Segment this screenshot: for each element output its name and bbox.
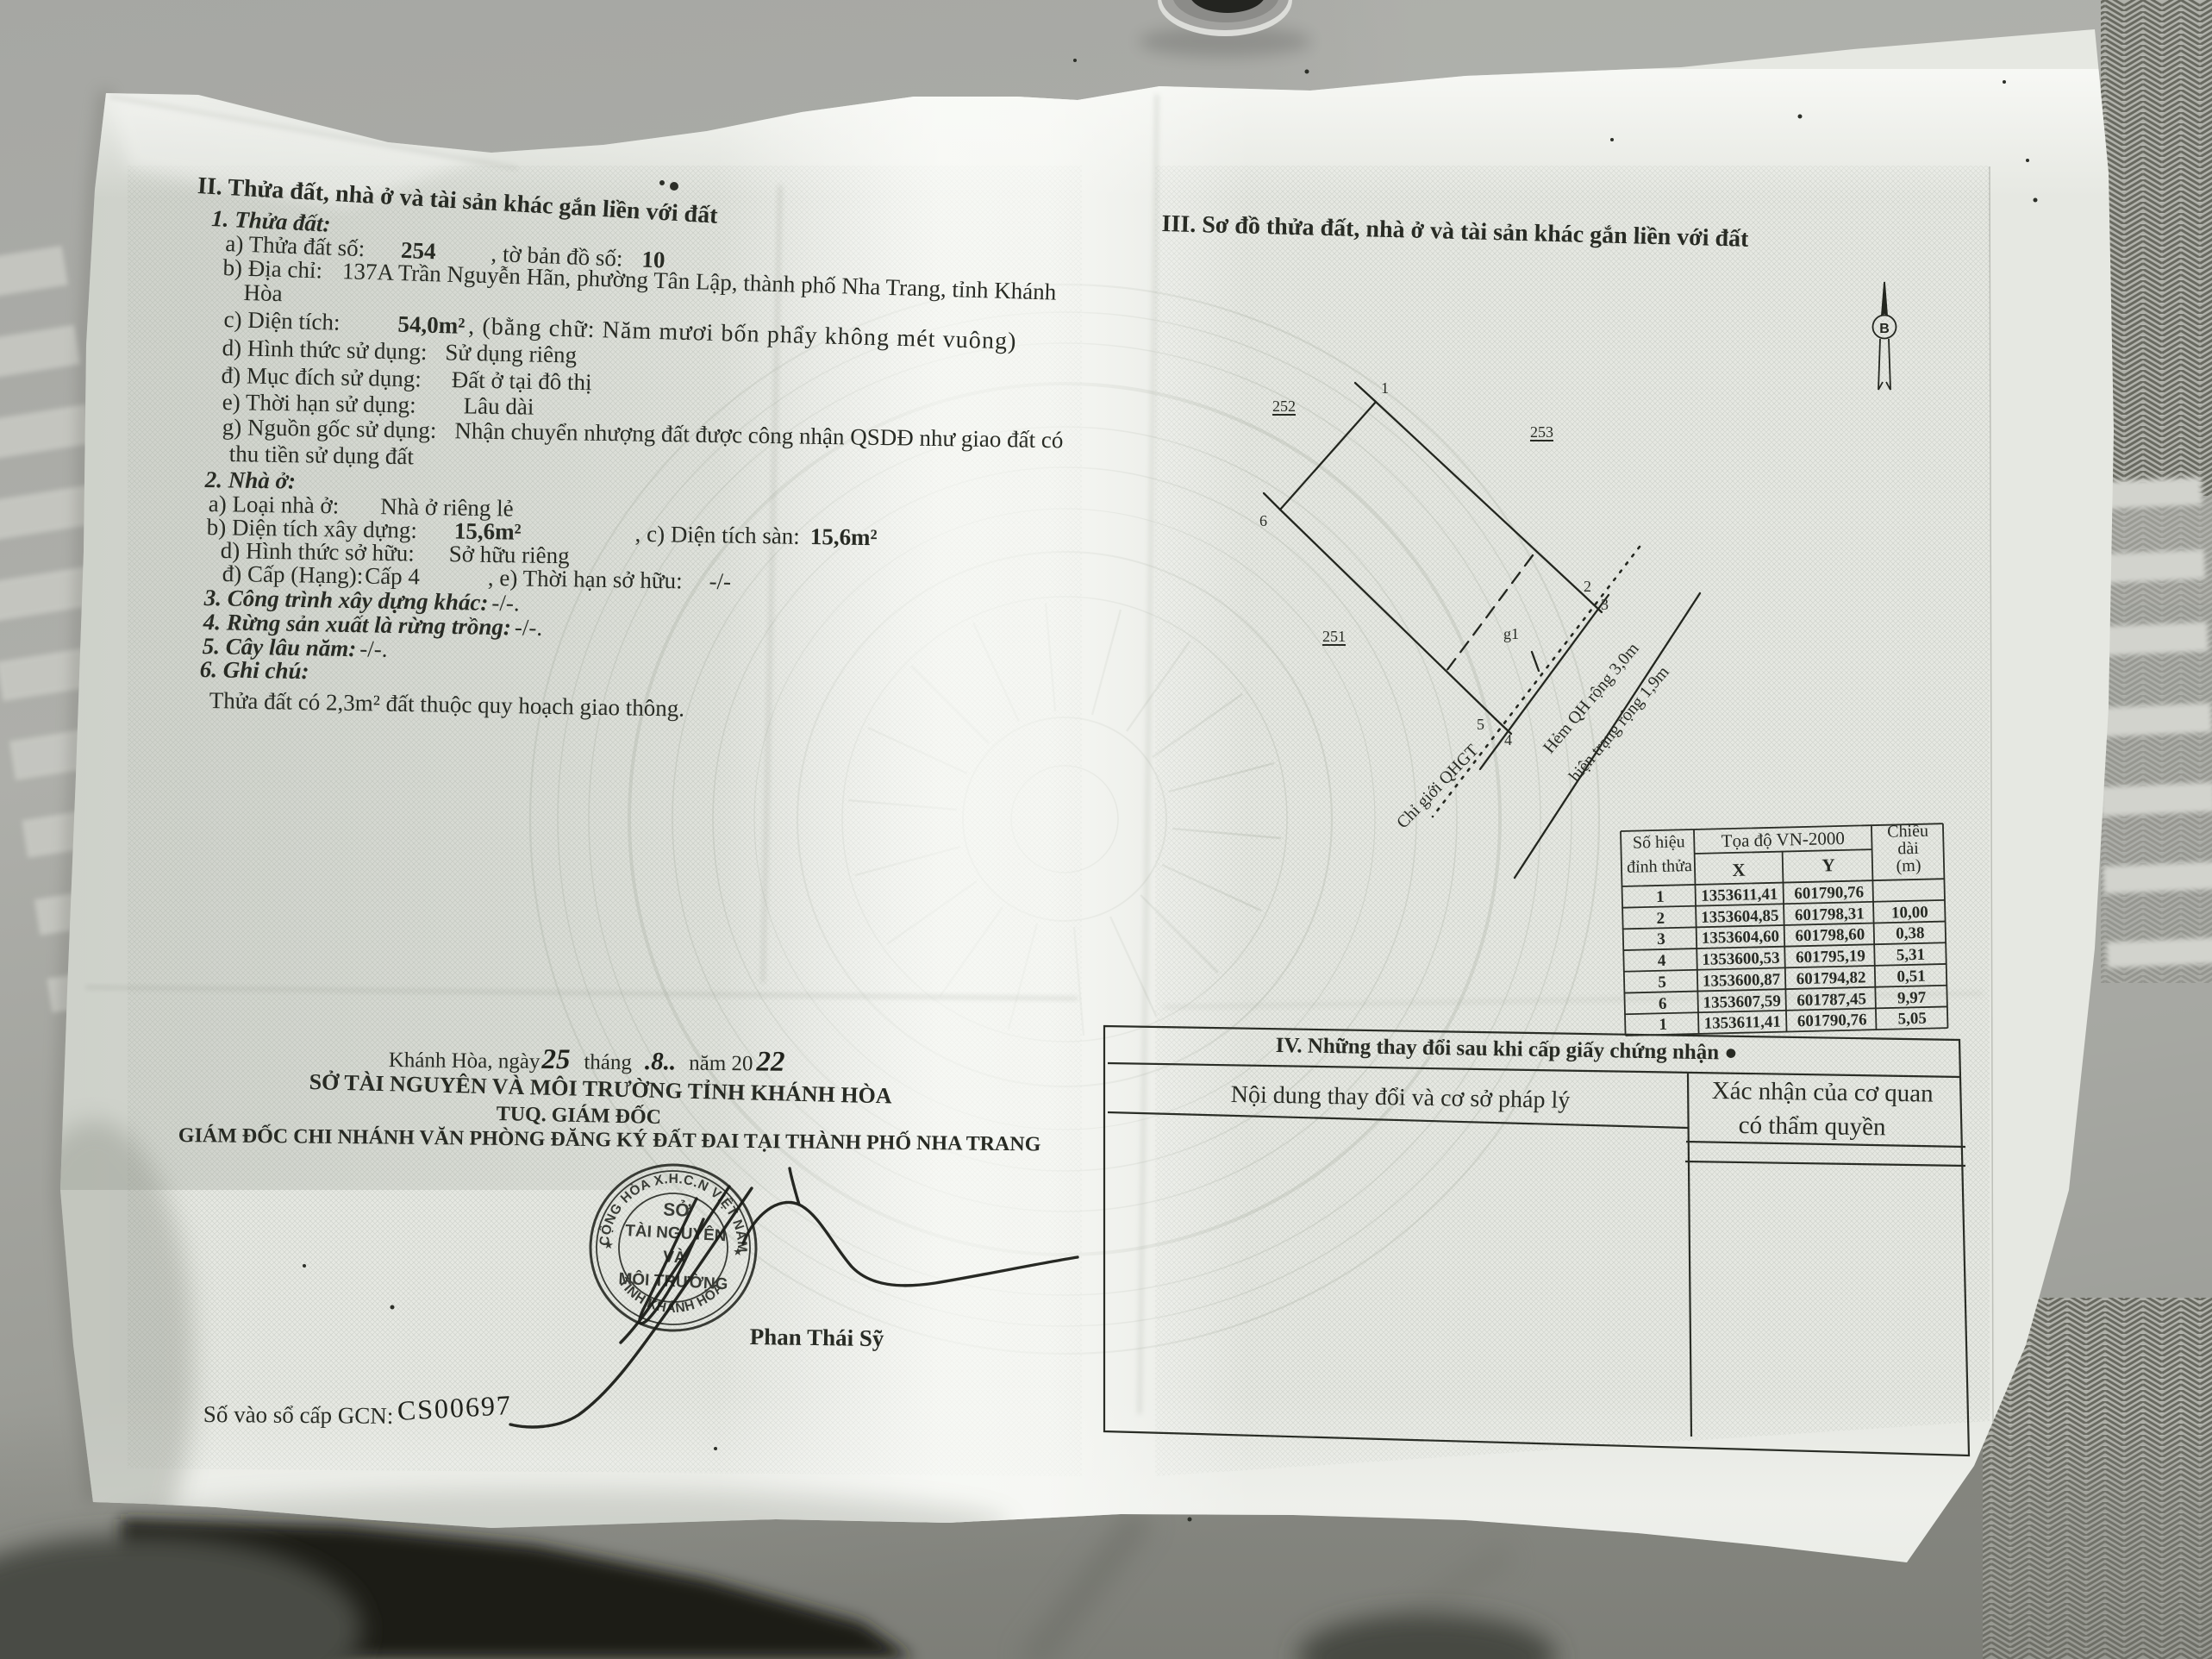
svg-text:★: ★ — [733, 1245, 743, 1259]
svg-text:★: ★ — [603, 1238, 614, 1252]
svg-text:B: B — [1879, 322, 1890, 336]
